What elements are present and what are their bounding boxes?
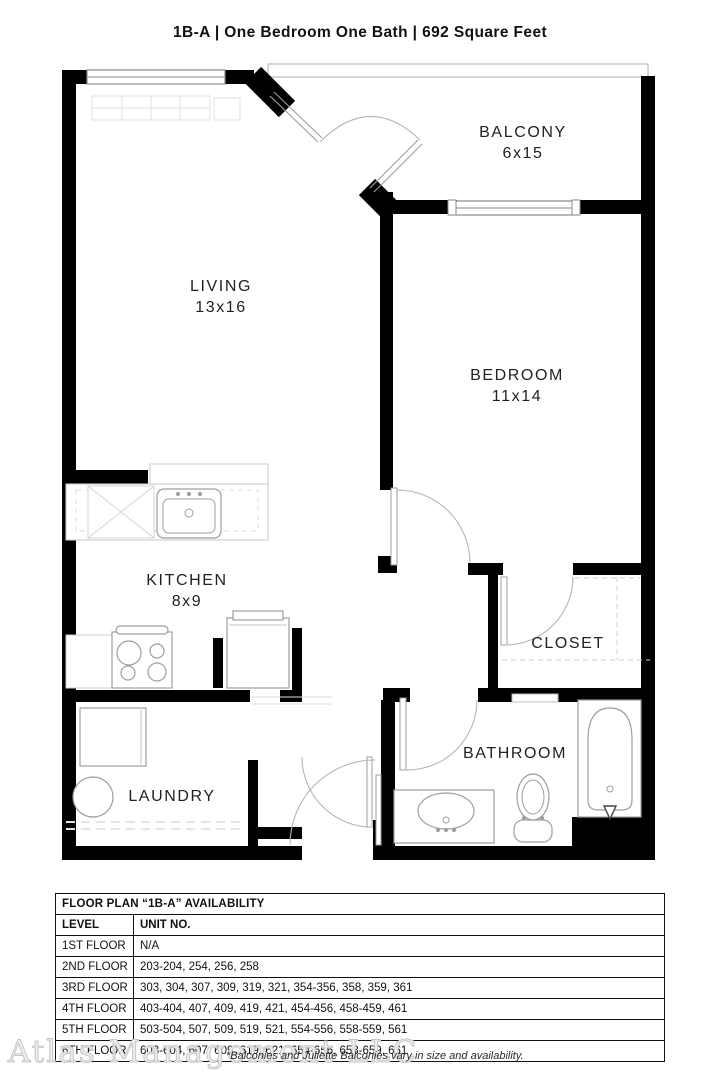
- dishwasher: [88, 486, 154, 538]
- col-header-level: LEVEL: [56, 915, 134, 936]
- living-label: LIVING 13x16: [190, 276, 252, 318]
- bedroom-window: [448, 200, 580, 215]
- row-units: 303, 304, 307, 309, 319, 321, 354-356, 3…: [134, 978, 665, 999]
- table-row: 3RD FLOOR 303, 304, 307, 309, 319, 321, …: [56, 978, 665, 999]
- balcony-door: [270, 92, 422, 192]
- washer: [80, 708, 146, 766]
- table-title-row: FLOOR PLAN “1B-A” AVAILABILITY: [56, 894, 665, 915]
- closet-name: CLOSET: [531, 633, 605, 654]
- bathroom-name: BATHROOM: [463, 743, 567, 764]
- floor-plan-page: 1B-A | One Bedroom One Bath | 692 Square…: [0, 0, 720, 1080]
- table-title: FLOOR PLAN “1B-A” AVAILABILITY: [56, 894, 665, 915]
- row-units: N/A: [134, 936, 665, 957]
- bedroom-door: [391, 488, 470, 565]
- living-window: [87, 70, 225, 84]
- laundry-name: LAUNDRY: [128, 786, 215, 807]
- stove: [66, 626, 172, 688]
- row-level: 3RD FLOOR: [56, 978, 134, 999]
- bathroom-vanity: [394, 790, 494, 843]
- kitchen-sink: [157, 489, 221, 538]
- bedroom-name: BEDROOM: [470, 365, 564, 386]
- living-dims: 13x16: [190, 297, 252, 318]
- col-header-unit: UNIT NO.: [134, 915, 665, 936]
- closet-label: CLOSET: [531, 633, 605, 654]
- kitchen-dims: 8x9: [146, 591, 227, 612]
- toilet: [514, 774, 552, 842]
- table-header-row: LEVEL UNIT NO.: [56, 915, 665, 936]
- kitchen-label: KITCHEN 8x9: [146, 570, 227, 612]
- balcony-railing: [268, 64, 648, 77]
- water-heater: [73, 777, 113, 817]
- row-units: 403-404, 407, 409, 419, 421, 454-456, 45…: [134, 999, 665, 1020]
- laundry-floor-lines: [66, 822, 246, 829]
- row-level: 1ST FLOOR: [56, 936, 134, 957]
- laundry-label: LAUNDRY: [128, 786, 215, 807]
- bedroom-label: BEDROOM 11x14: [470, 365, 564, 407]
- bathroom-niche: [512, 694, 558, 702]
- balcony-disclaimer: *Balconies and Juliette Balconies vary i…: [226, 1050, 524, 1062]
- bathroom-label: BATHROOM: [463, 743, 567, 764]
- floor-plan-drawing: [0, 0, 720, 880]
- refrigerator: [227, 611, 289, 688]
- row-level: 2ND FLOOR: [56, 957, 134, 978]
- living-name: LIVING: [190, 276, 252, 297]
- table-row: 2ND FLOOR 203-204, 254, 256, 258: [56, 957, 665, 978]
- table-row: 4TH FLOOR 403-404, 407, 409, 419, 421, 4…: [56, 999, 665, 1020]
- table-row: 1ST FLOOR N/A: [56, 936, 665, 957]
- balcony-dims: 6x15: [479, 143, 567, 164]
- balcony-name: BALCONY: [479, 122, 567, 143]
- heater-unit: [92, 96, 240, 120]
- kitchen-name: KITCHEN: [146, 570, 227, 591]
- bedroom-dims: 11x14: [470, 386, 564, 407]
- laundry-door: [302, 757, 372, 827]
- balcony-label: BALCONY 6x15: [479, 122, 567, 164]
- row-level: 4TH FLOOR: [56, 999, 134, 1020]
- bathtub: [578, 700, 641, 819]
- row-units: 203-204, 254, 256, 258: [134, 957, 665, 978]
